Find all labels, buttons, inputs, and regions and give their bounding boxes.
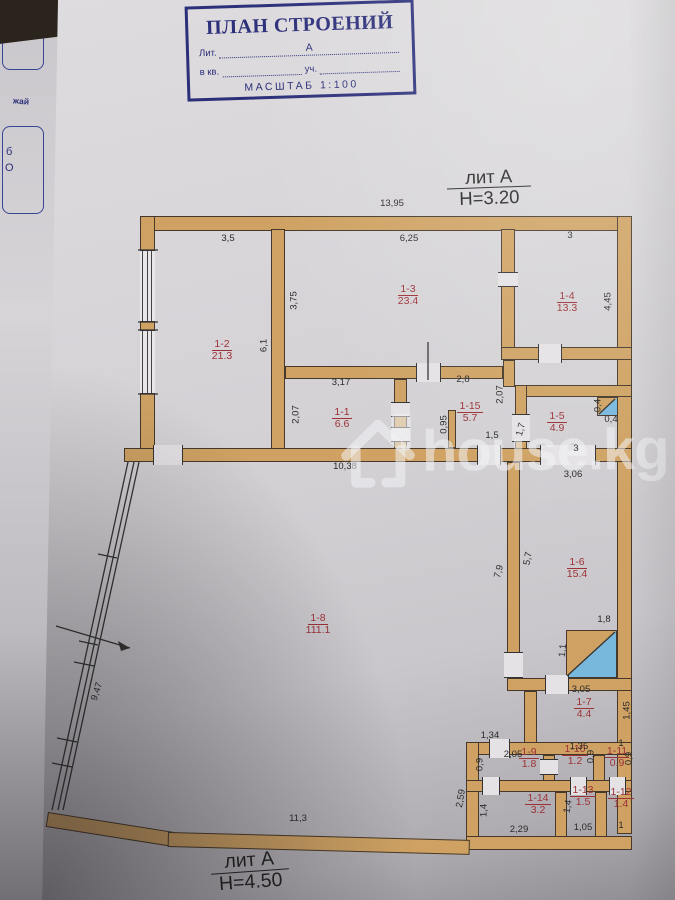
dimension-label: 1: [601, 820, 641, 831]
room-label-1-3: 1-323.4: [378, 283, 438, 307]
door-opening: [538, 344, 562, 363]
dimension-label: 5,7: [519, 538, 537, 579]
dimension-label: 3,17: [321, 377, 361, 388]
dimension-label: 9,47: [86, 671, 109, 712]
dimension-label: 3,05: [561, 684, 601, 695]
dimension-label: 0,95: [439, 405, 450, 445]
wall: [140, 216, 632, 231]
dimension-label: 6,25: [389, 233, 429, 244]
dimension-label: 2,8: [443, 374, 483, 385]
dimension-label: 13,95: [372, 198, 412, 209]
room-label-1-2: 1-221.3: [192, 338, 252, 362]
dimension-label: 3: [550, 230, 590, 241]
dimension-label: 11,3: [278, 813, 318, 824]
dimension-label: 0,9: [586, 737, 597, 777]
dimension-label: 2,07: [291, 395, 302, 435]
dimension-label: 0,9: [624, 739, 635, 779]
dimension-label: 0,9: [475, 745, 486, 785]
dimension-label: 3: [556, 443, 596, 454]
dimension-label: 3,75: [289, 281, 300, 321]
door-opening: [391, 402, 410, 417]
wall: [271, 229, 285, 455]
dimension-label: 1,05: [563, 822, 603, 833]
document-photo: жай б О ПЛАН СТРОЕНИЙ Лит. А в кв. уч. М…: [0, 0, 675, 900]
dimension-label: 3,5: [208, 233, 248, 244]
dimension-label: 10,38: [325, 461, 365, 472]
dimension-label: 1,8: [584, 614, 624, 625]
wall: [501, 347, 632, 360]
room-label-1-7: 1-74.4: [554, 696, 614, 720]
dimension-label: 2,05: [493, 749, 533, 760]
floor-plan: 1-221.31-323.41-413.31-16.61-155.71-54.9…: [0, 0, 675, 900]
wall: [515, 385, 632, 397]
stairs-triangle: [567, 631, 616, 677]
dimension-label: 1,5: [472, 430, 512, 441]
dimension-label: 3,06: [553, 469, 593, 480]
plan-sheet: ПЛАН СТРОЕНИЙ Лит. А в кв. уч. МАСШТАБ 1…: [0, 0, 675, 900]
underlying-page-text: жай: [13, 95, 30, 106]
room-label-1-6: 1-615.4: [547, 556, 607, 580]
dimension-label: 4,45: [603, 282, 614, 322]
dimension-label: 2,29: [499, 824, 539, 835]
wall: [46, 812, 177, 847]
door-opening: [153, 445, 183, 465]
room-label-1-12: 1-121.4: [591, 786, 651, 810]
wall: [168, 832, 470, 855]
door-opening: [416, 363, 441, 382]
wall: [507, 462, 520, 682]
dimension-label: 2,07: [495, 375, 506, 415]
door-opening: [477, 445, 501, 465]
door-opening: [391, 427, 410, 442]
underlying-page-text: О: [5, 162, 14, 174]
arrow-head: [118, 641, 130, 651]
dimension-label: 0,4: [591, 414, 631, 425]
dimension-label: 1,34: [470, 730, 510, 741]
door-opening: [504, 652, 523, 678]
room-label-1-4: 1-413.3: [537, 290, 597, 314]
wall: [466, 836, 632, 850]
room-label-1-8: 1-8111.1: [288, 612, 348, 636]
window-symbol: [140, 330, 155, 394]
wall: [501, 229, 515, 351]
stairs-symbol: [566, 630, 617, 678]
room-label-1-1: 1-16.6: [312, 406, 372, 430]
room-label-1-5: 1-54.9: [527, 410, 587, 434]
dimension-label: 6,1: [259, 326, 270, 366]
underlying-page-text: б: [6, 146, 12, 158]
dimension-label: 1,45: [622, 691, 633, 731]
dimension-label: 1: [601, 738, 641, 749]
door-opening: [498, 272, 518, 287]
dimension-label: 1,4: [479, 791, 490, 831]
window-symbol: [140, 250, 155, 322]
wall: [524, 691, 537, 743]
